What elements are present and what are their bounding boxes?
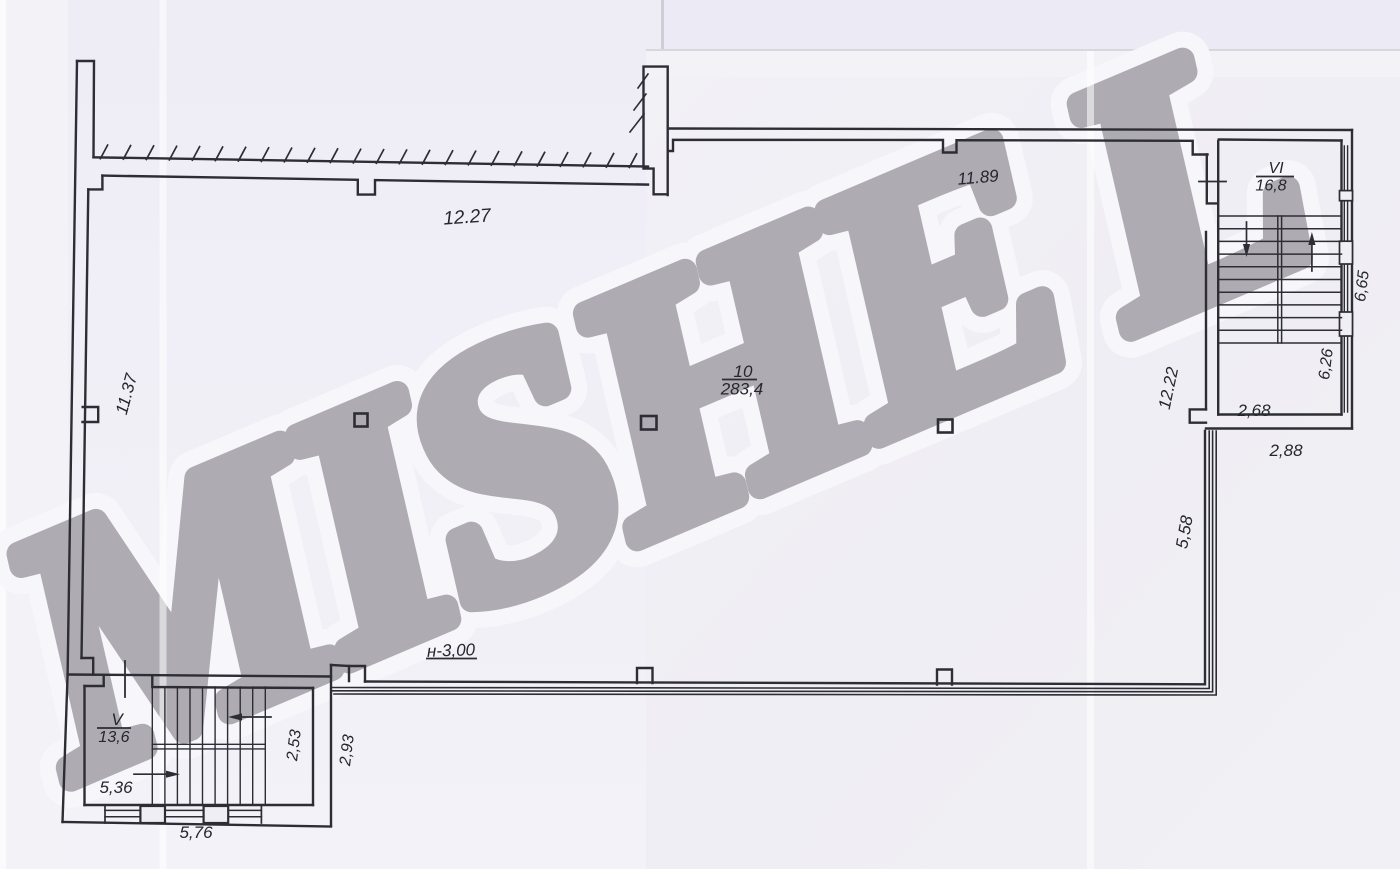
svg-text:10: 10 xyxy=(734,362,753,381)
svg-text:V: V xyxy=(111,710,124,729)
svg-text:16,8: 16,8 xyxy=(1255,178,1286,195)
svg-text:2,88: 2,88 xyxy=(1268,441,1303,460)
svg-text:5,76: 5,76 xyxy=(179,823,213,842)
svg-text:13,6: 13,6 xyxy=(98,729,129,746)
svg-text:11.89: 11.89 xyxy=(957,166,1000,189)
svg-text:12.27: 12.27 xyxy=(443,205,493,229)
svg-text:283,4: 283,4 xyxy=(720,380,764,399)
svg-text:2,68: 2,68 xyxy=(1236,401,1271,420)
svg-text:VI: VI xyxy=(1268,160,1284,177)
svg-text:5,36: 5,36 xyxy=(99,778,133,797)
